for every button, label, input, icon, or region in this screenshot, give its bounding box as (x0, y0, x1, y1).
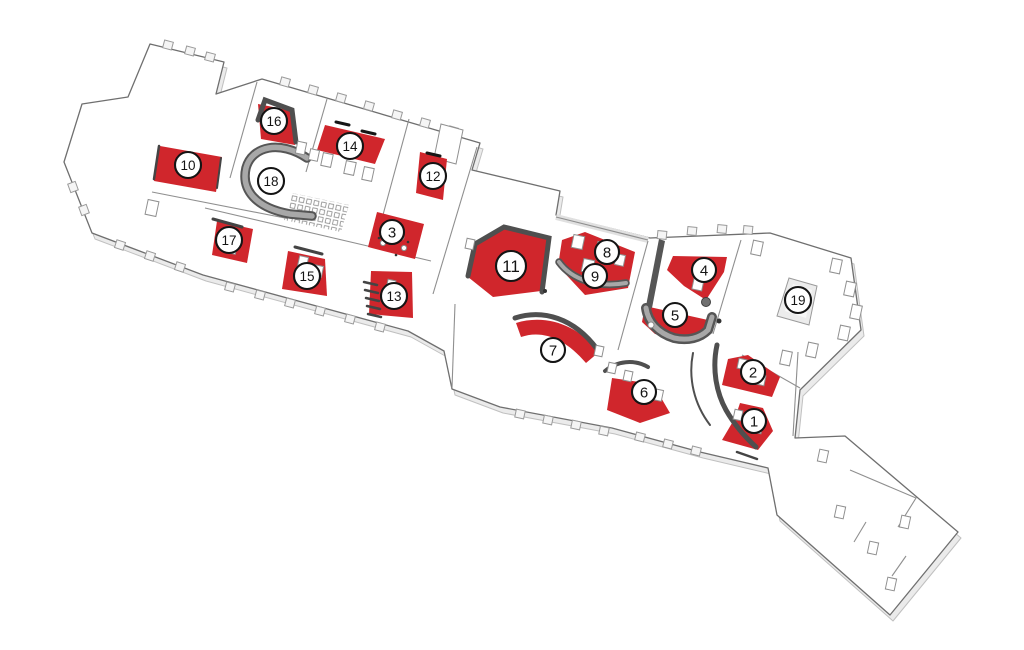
isometric-floor-plan: 12345678910111213141516171819 (0, 0, 1024, 650)
marker-number: 5 (671, 307, 679, 324)
marker-number: 6 (640, 384, 648, 401)
marker-number: 18 (263, 174, 278, 189)
marker-number: 4 (700, 262, 708, 279)
marker-number: 7 (549, 342, 557, 359)
marker-1[interactable]: 1 (742, 409, 766, 433)
marker-12[interactable]: 12 (420, 163, 446, 189)
marker-10[interactable]: 10 (175, 152, 201, 178)
marker-number: 17 (221, 233, 236, 248)
marker-number: 15 (299, 269, 314, 284)
marker-number: 16 (266, 114, 281, 129)
building-footprint (64, 44, 961, 621)
marker-18[interactable]: 18 (258, 168, 284, 194)
marker-8[interactable]: 8 (595, 240, 619, 264)
marker-number: 10 (180, 158, 195, 173)
marker-number: 14 (342, 139, 358, 154)
column (702, 298, 711, 307)
marker-4[interactable]: 4 (692, 258, 716, 282)
marker-number: 12 (425, 169, 440, 184)
marker-number: 19 (790, 293, 805, 308)
marker-number: 1 (750, 413, 758, 430)
marker-3[interactable]: 3 (380, 220, 404, 244)
marker-number: 9 (591, 268, 599, 285)
marker-number: 13 (386, 289, 401, 304)
marker-number: 2 (749, 364, 757, 381)
marker-19[interactable]: 19 (785, 287, 811, 313)
marker-number: 11 (502, 257, 520, 276)
marker-6[interactable]: 6 (632, 380, 656, 404)
marker-9[interactable]: 9 (583, 264, 607, 288)
marker-14[interactable]: 14 (337, 133, 363, 159)
marker-16[interactable]: 16 (261, 108, 287, 134)
marker-11[interactable]: 11 (496, 251, 526, 281)
marker-7[interactable]: 7 (541, 338, 565, 362)
marker-13[interactable]: 13 (381, 283, 407, 309)
marker-5[interactable]: 5 (663, 303, 687, 327)
marker-17[interactable]: 17 (216, 227, 242, 253)
marker-2[interactable]: 2 (741, 360, 765, 384)
marker-number: 3 (388, 224, 396, 241)
marker-number: 8 (603, 244, 611, 261)
marker-15[interactable]: 15 (294, 263, 320, 289)
floor-plan-canvas: 12345678910111213141516171819 (0, 0, 1024, 650)
